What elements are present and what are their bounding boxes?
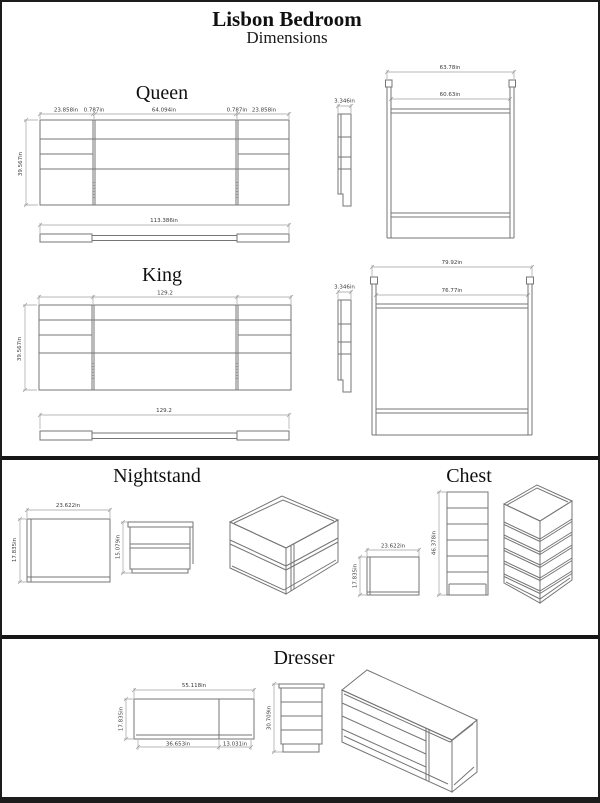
- object-lines: [371, 277, 534, 435]
- dim-label-king-frame-outer: 79.92in: [442, 260, 463, 266]
- object-lines: [27, 519, 110, 582]
- object-lines: [134, 699, 254, 739]
- dim-label-king-width: 129.2: [157, 291, 173, 297]
- object-lines: [447, 492, 488, 595]
- dim-label-dresser-base-right: 13.031in: [223, 742, 248, 748]
- dimension-sheet: Lisbon Bedroom Dimensions Queen 23.858in…: [0, 0, 600, 803]
- section-divider: [2, 635, 598, 639]
- dim-label-queen-gap-left: 0.787in: [84, 108, 105, 114]
- object-lines: [338, 114, 351, 206]
- chest-isometric-drawing: [490, 470, 585, 615]
- dim-label-chest-depth: 17.835in: [353, 563, 359, 588]
- dim-label-nightstand-width: 23.622in: [56, 503, 81, 509]
- dim-label-dresser-height: 30.709in: [267, 705, 273, 730]
- dimension-lines: [370, 265, 534, 303]
- dim-label-queen-gap-right: 0.787in: [227, 108, 248, 114]
- dresser-isometric-drawing: [334, 650, 479, 800]
- dimension-lines: [38, 413, 291, 429]
- chest-top-view-drawing: 23.622in 17.835in: [354, 542, 434, 602]
- dimension-lines: [23, 295, 293, 392]
- object-lines: [338, 300, 351, 392]
- object-lines: [40, 120, 289, 205]
- dim-label-nightstand-height: 15.079in: [116, 534, 122, 559]
- king-rail-drawing: 129.2: [27, 402, 307, 442]
- object-lines: [40, 234, 289, 242]
- dim-label-queen-left-panel: 23.858in: [54, 108, 79, 114]
- page-subtitle: Dimensions: [142, 28, 432, 48]
- dresser-top-view-drawing: 55.118in 17.835in 36.653in 13.031in: [114, 674, 274, 759]
- object-lines: [39, 305, 291, 390]
- object-lines: [230, 496, 338, 594]
- dim-label-dresser-depth: 17.835in: [119, 706, 125, 731]
- dim-label-dresser-base-left: 36.653in: [166, 742, 191, 748]
- king-section-title: King: [62, 264, 262, 287]
- dim-label-chest-width: 23.622in: [381, 544, 406, 550]
- dimension-lines: [336, 104, 353, 113]
- king-headboard-front-drawing: 129.2 39.567in: [12, 287, 327, 399]
- dim-label-queen-height: 39.567in: [18, 151, 24, 176]
- object-lines: [367, 557, 419, 595]
- dim-label-king-frame-inner: 76.77in: [442, 288, 463, 294]
- dim-label-queen-rail: 113.386in: [150, 218, 178, 224]
- dim-label-king-height: 39.567in: [17, 336, 23, 361]
- queen-frame-drawing: 63.78in 60.63in: [377, 57, 532, 247]
- object-lines: [279, 684, 324, 752]
- nightstand-top-view-drawing: 23.622in 17.835in: [10, 497, 130, 592]
- dimension-lines: [38, 223, 291, 233]
- queen-headboard-side-drawing: 3.346in: [324, 94, 379, 216]
- dim-label-king-side-thickness: 3.346in: [334, 285, 355, 291]
- dimension-lines: [24, 112, 291, 207]
- object-lines: [504, 485, 572, 603]
- nightstand-isometric-drawing: [210, 480, 345, 610]
- dim-label-nightstand-depth: 17.835in: [12, 537, 18, 562]
- dim-label-king-rail: 129.2: [156, 408, 172, 414]
- section-divider: [2, 456, 598, 460]
- dim-label-queen-right-panel: 23.858in: [252, 108, 277, 114]
- dim-label-queen-center: 64.094in: [152, 108, 177, 114]
- queen-rail-drawing: 113.386in: [27, 215, 307, 249]
- nightstand-front-view-drawing: 15.079in: [114, 507, 209, 587]
- object-lines: [128, 522, 193, 573]
- dim-label-queen-side-thickness: 3.346in: [334, 99, 355, 105]
- dim-label-queen-frame-inner: 60.63in: [440, 92, 461, 98]
- dimension-lines: [385, 70, 516, 108]
- object-lines: [386, 80, 516, 238]
- dim-label-chest-height: 46.378in: [432, 530, 438, 555]
- dresser-side-view-drawing: 30.709in: [264, 670, 339, 765]
- dimension-lines: [336, 290, 353, 299]
- object-lines: [342, 670, 477, 792]
- queen-headboard-front-drawing: 23.858in 0.787in 64.094in 0.787in 23.858…: [12, 102, 327, 214]
- object-lines: [40, 431, 289, 440]
- dim-label-queen-frame-outer: 63.78in: [440, 65, 461, 71]
- dim-label-dresser-width: 55.118in: [182, 683, 207, 689]
- king-frame-drawing: 79.92in 76.77in: [360, 250, 550, 442]
- dimension-lines: [437, 490, 448, 597]
